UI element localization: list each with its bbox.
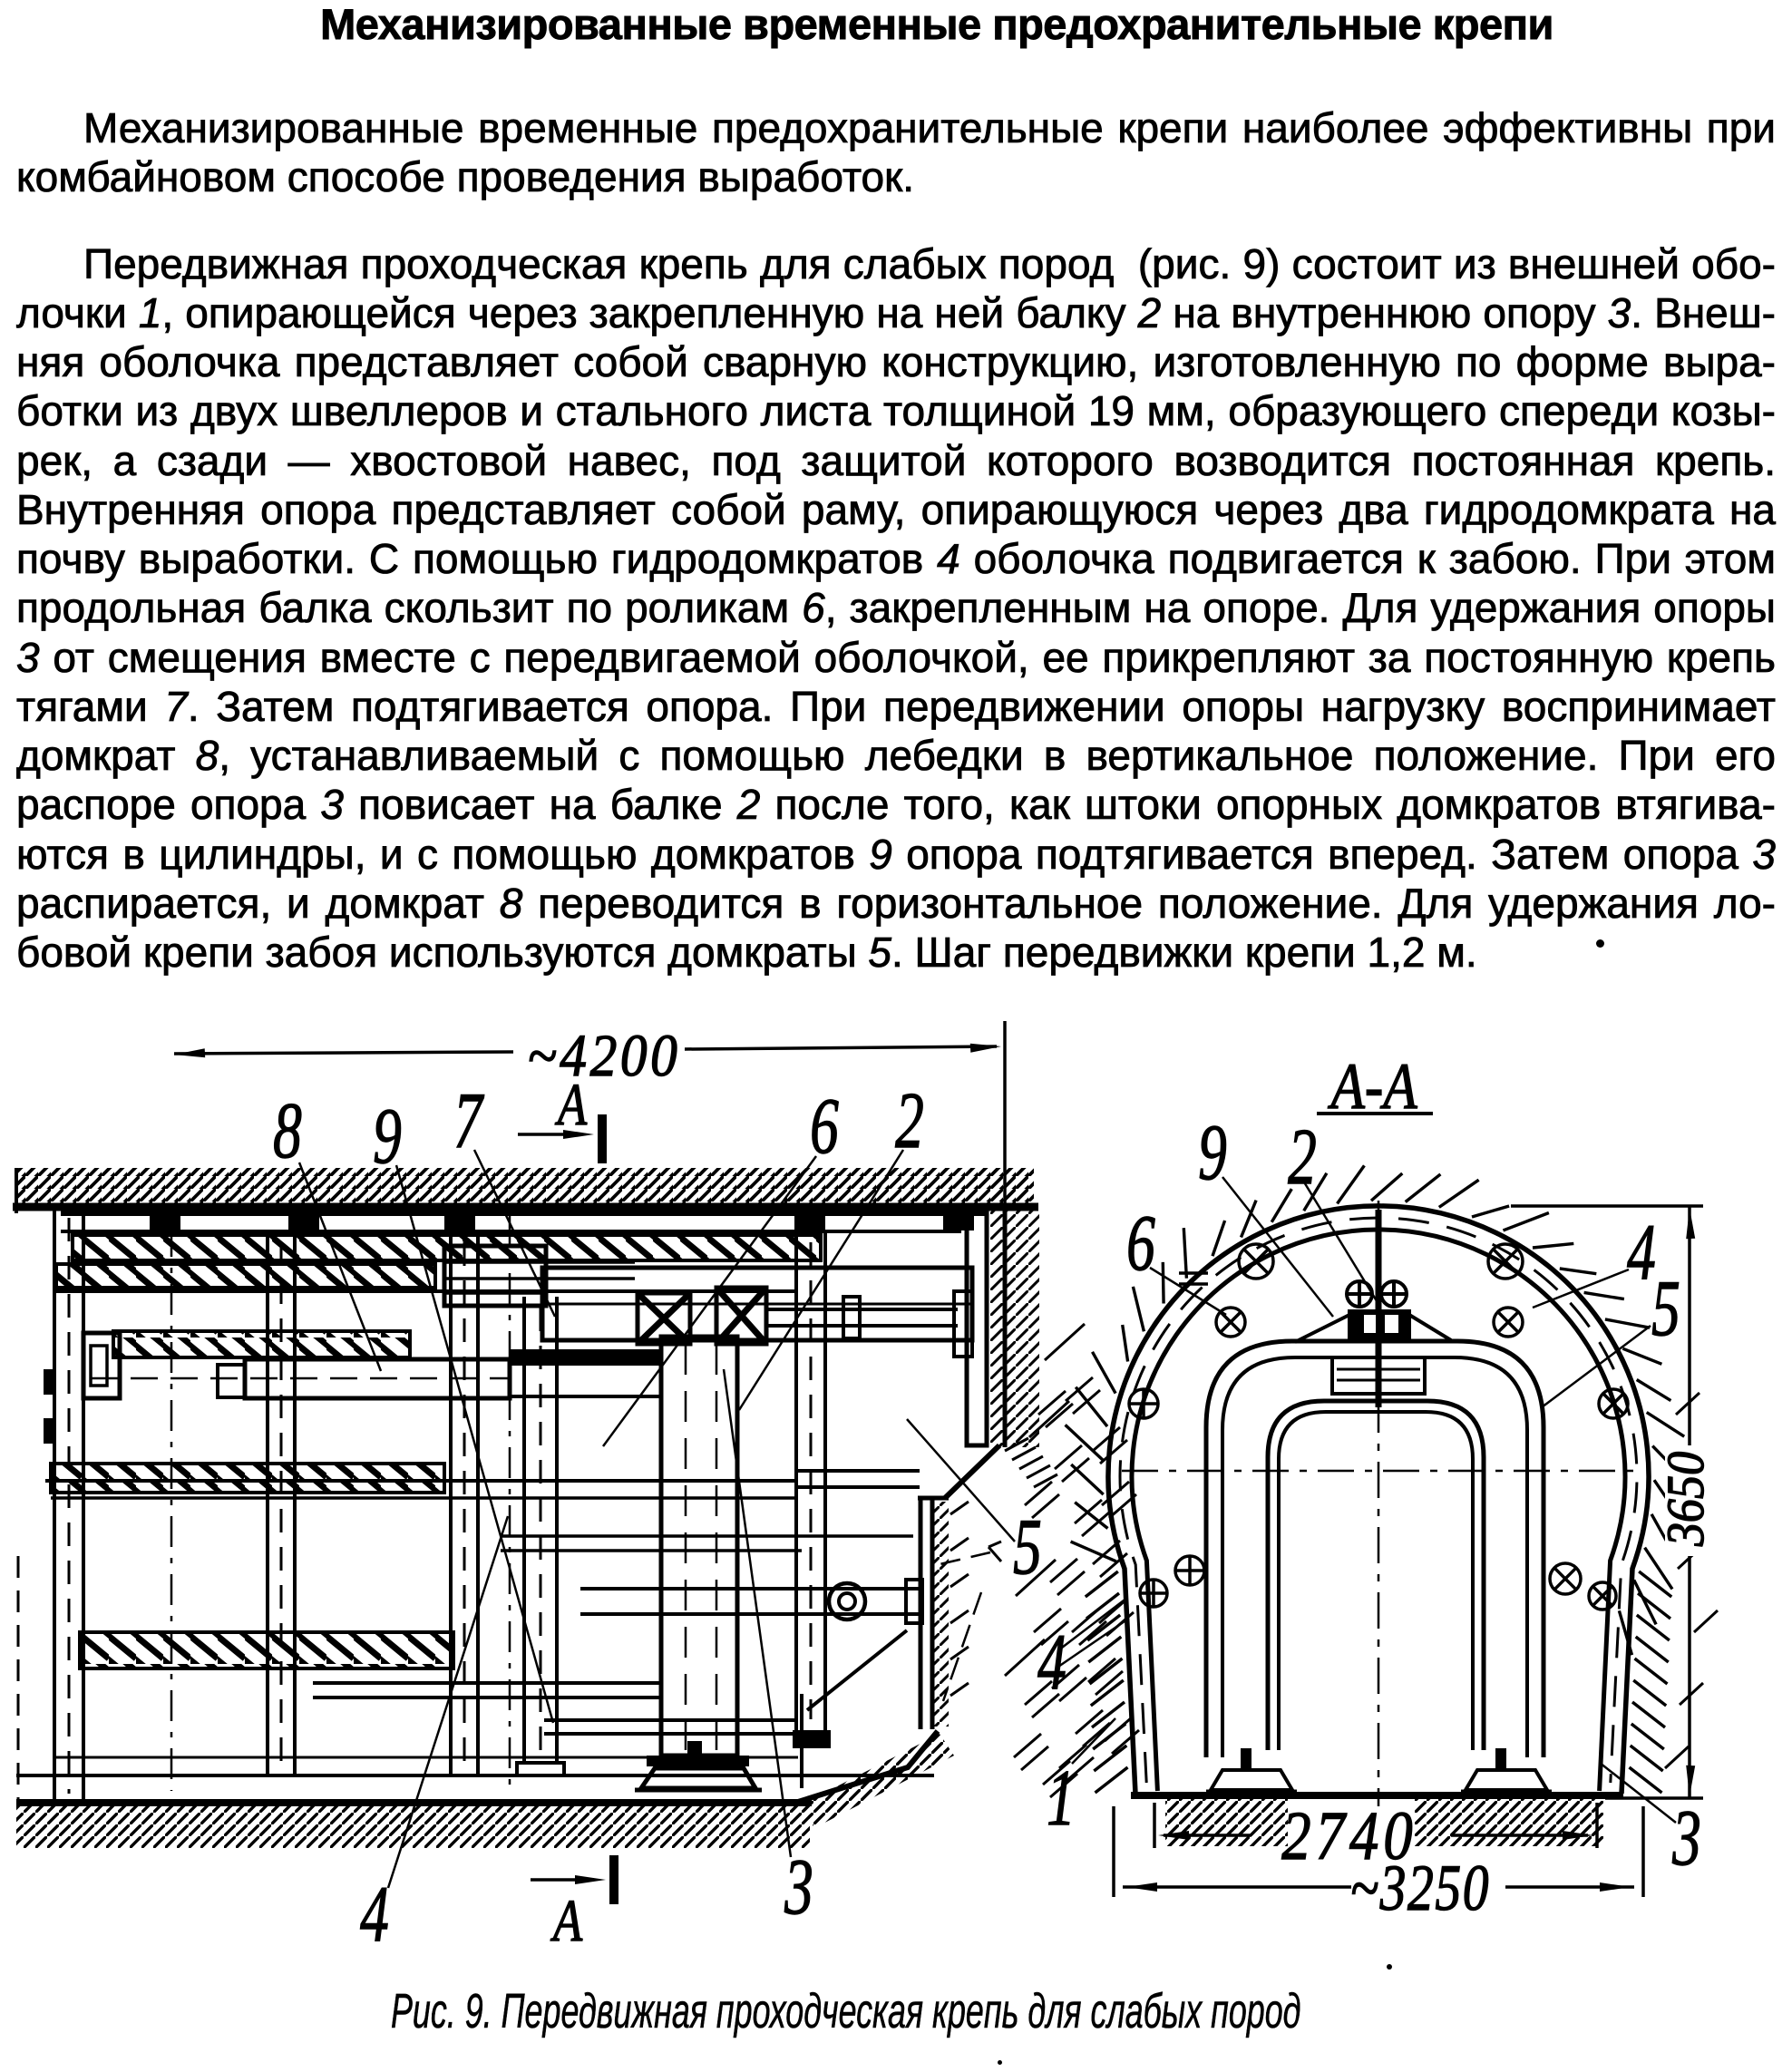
- svg-text:~4200: ~4200: [528, 1022, 681, 1089]
- svg-text:3: 3: [1671, 1794, 1700, 1882]
- svg-text:A: A: [550, 1887, 582, 1953]
- svg-text:8: 8: [273, 1086, 302, 1175]
- svg-text:~3250: ~3250: [1350, 1853, 1490, 1925]
- svg-text:1: 1: [1047, 1754, 1076, 1843]
- svg-text:7: 7: [453, 1076, 484, 1165]
- svg-text:4: 4: [360, 1870, 389, 1959]
- svg-text:3650: 3650: [1656, 1452, 1714, 1547]
- svg-text:2: 2: [895, 1076, 924, 1165]
- svg-text:A: A: [554, 1071, 587, 1137]
- svg-text:9: 9: [1198, 1108, 1227, 1197]
- svg-text:5: 5: [1651, 1264, 1680, 1353]
- svg-text:4: 4: [1037, 1618, 1066, 1707]
- svg-text:3: 3: [784, 1843, 813, 1931]
- svg-text:6: 6: [1126, 1199, 1155, 1288]
- svg-text:2: 2: [1288, 1113, 1317, 1201]
